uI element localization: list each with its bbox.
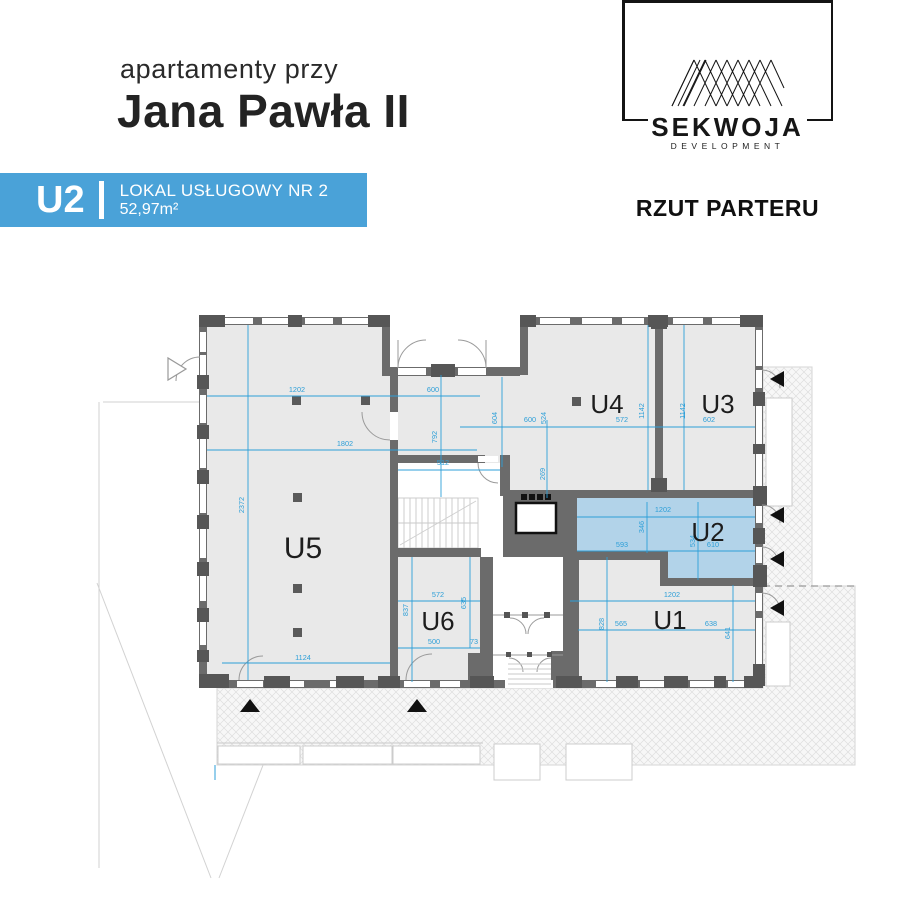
floor-plan: 1202600180223727925126046005245726021142… bbox=[0, 0, 918, 918]
dimension-label: 500 bbox=[428, 637, 440, 646]
dimension-label: 600 bbox=[524, 415, 536, 424]
dimension-label: 641 bbox=[723, 627, 732, 639]
room-label-u3: U3 bbox=[701, 389, 734, 419]
room-label-u2: U2 bbox=[691, 517, 724, 547]
staircase bbox=[398, 498, 478, 548]
dimension-label: 524 bbox=[539, 412, 548, 424]
dimension-label: 638 bbox=[705, 619, 717, 628]
dimension-label: 2372 bbox=[237, 497, 246, 513]
dimension-label: 600 bbox=[427, 385, 439, 394]
dimension-label: 572 bbox=[432, 590, 444, 599]
dimension-label: 792 bbox=[430, 431, 439, 443]
dimension-label: 1802 bbox=[337, 439, 353, 448]
dimension-label: 269 bbox=[538, 468, 547, 480]
paving-slab bbox=[393, 746, 480, 764]
dimension-label: 1142 bbox=[678, 403, 687, 419]
dimension-label: 1202 bbox=[655, 505, 671, 514]
entrance-marker-outline bbox=[168, 358, 186, 380]
paving-slab bbox=[494, 744, 540, 780]
dimension-label: 1202 bbox=[289, 385, 305, 394]
dimension-label: 512 bbox=[437, 458, 449, 467]
paving-slab bbox=[218, 746, 300, 764]
room-label-u4: U4 bbox=[590, 389, 623, 419]
dimension-label: 604 bbox=[490, 412, 499, 424]
dimension-label: 346 bbox=[637, 521, 646, 533]
dimension-label: 1142 bbox=[637, 403, 646, 419]
terrace-pad bbox=[766, 398, 792, 506]
paving-slab bbox=[566, 744, 632, 780]
terrace-pad bbox=[766, 622, 790, 686]
dimension-label: 593 bbox=[616, 540, 628, 549]
dimension-label: 837 bbox=[401, 604, 410, 616]
room-label-u5: U5 bbox=[284, 532, 322, 565]
paving-slab bbox=[303, 746, 392, 764]
dimension-label: 565 bbox=[615, 619, 627, 628]
dimension-label: 73 bbox=[470, 637, 478, 646]
dimension-label: 635 bbox=[459, 597, 468, 609]
dimension-label: 1202 bbox=[664, 590, 680, 599]
dimension-label: 828 bbox=[597, 618, 606, 630]
dimension-label: 1124 bbox=[295, 653, 311, 662]
room-label-u6: U6 bbox=[421, 606, 454, 636]
room-label-u1: U1 bbox=[653, 605, 686, 635]
